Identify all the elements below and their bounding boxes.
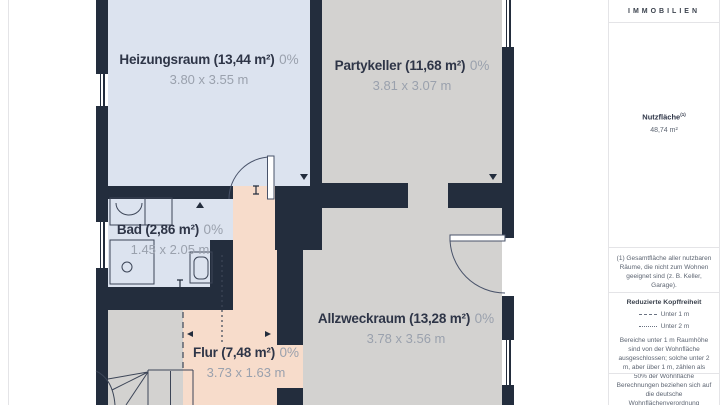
room-dimensions: 1.45 x 2.05 m [117, 240, 223, 260]
legend-item-label: Unter 2 m [661, 323, 690, 330]
label-partykeller: Partykeller (11,68 m²) 0% 3.81 x 3.07 m [335, 56, 490, 96]
room-dimensions: 3.81 x 3.07 m [335, 76, 490, 96]
label-heizungsraum: Heizungsraum (13,44 m²) 0% 3.80 x 3.55 m [119, 50, 298, 90]
sidebar-divider [609, 22, 719, 23]
wall-flur-allzweckraum-lower [277, 388, 303, 405]
room-percent: 0% [279, 345, 299, 360]
room-name-area: Bad (2,86 m²) [117, 222, 199, 237]
sidebar-divider [609, 247, 719, 248]
label-allzweckraum: Allzweckraum (13,28 m²) 0% 3.78 x 3.56 m [318, 309, 494, 349]
dashed-line-sample [639, 314, 657, 315]
label-flur: Flur (7,48 m²) 0% 3.73 x 1.63 m [193, 343, 299, 383]
room-percent: 0% [279, 52, 299, 67]
room-name-area: Allzweckraum (13,28 m²) [318, 311, 470, 326]
disclaimer-text: Berechnungen beziehen sich auf die deuts… [616, 381, 712, 405]
legend-title: Reduzierte Kopffreiheit [609, 299, 719, 306]
understairs-excluded-area [107, 310, 183, 405]
floor-plan: Heizungsraum (13,44 m²) 0% 3.80 x 3.55 m… [0, 0, 600, 405]
legend-item-label: Unter 1 m [661, 311, 690, 318]
legend-item-under-1m: Unter 1 m [609, 311, 719, 318]
label-bad: Bad (2,86 m²) 0% 1.45 x 2.05 m [117, 220, 223, 260]
nutzflaeche-label: Nutzfläche(1) [609, 112, 719, 122]
dotted-line-sample [639, 326, 657, 327]
passage-partykeller-allzweckraum [408, 183, 448, 208]
wall-heizungsraum-partykeller [310, 0, 322, 186]
brand-logo-text: IMMOBILIEN [609, 0, 719, 22]
window-heizungsraum [96, 74, 108, 106]
room-percent: 0% [204, 222, 224, 237]
room-name-area: Heizungsraum (13,44 m²) [119, 52, 274, 67]
room-dimensions: 3.73 x 1.63 m [193, 363, 299, 383]
room-percent: 0% [475, 311, 495, 326]
wall-under-partykeller-right [448, 183, 502, 208]
room-allzweckraum [303, 208, 502, 405]
room-percent: 0% [470, 58, 490, 73]
wall-flur-allzweckraum-upper [277, 250, 303, 345]
legend-note: Bereiche unter 1 m Raumhöhe sind von der… [616, 336, 712, 381]
info-sidebar: IMMOBILIEN Nutzfläche(1) 48,74 m² (1) Ge… [608, 0, 720, 405]
room-dimensions: 3.78 x 3.56 m [318, 329, 494, 349]
legend-item-under-2m: Unter 2 m [609, 323, 719, 330]
wall-under-partykeller-left [322, 183, 408, 208]
footnote-text: (1) Gesamtfläche aller nutzbaren Räume, … [616, 254, 712, 290]
room-name-area: Partykeller (11,68 m²) [335, 58, 466, 73]
wall-under-bad [96, 287, 233, 310]
wall-outer-left [96, 0, 108, 405]
wall-under-heizungsraum-left [108, 186, 233, 199]
room-name-area: Flur (7,48 m²) [193, 345, 275, 360]
sidebar-divider [609, 292, 719, 293]
window-bad [96, 222, 108, 268]
floorplan-page: Heizungsraum (13,44 m²) 0% 3.80 x 3.55 m… [0, 0, 720, 405]
room-heizungsraum [108, 0, 310, 186]
sidebar-divider [609, 373, 719, 374]
wall-chimney-block [275, 186, 322, 250]
nutzflaeche-block: Nutzfläche(1) 48,74 m² [609, 112, 719, 134]
room-dimensions: 3.80 x 3.55 m [119, 70, 298, 90]
window-partykeller [502, 0, 514, 47]
room-flur-corridor [233, 186, 277, 310]
nutzflaeche-footnote-ref: (1) [680, 112, 686, 117]
window-allzweckraum [502, 340, 514, 385]
nutzflaeche-value: 48,74 m² [609, 127, 719, 134]
